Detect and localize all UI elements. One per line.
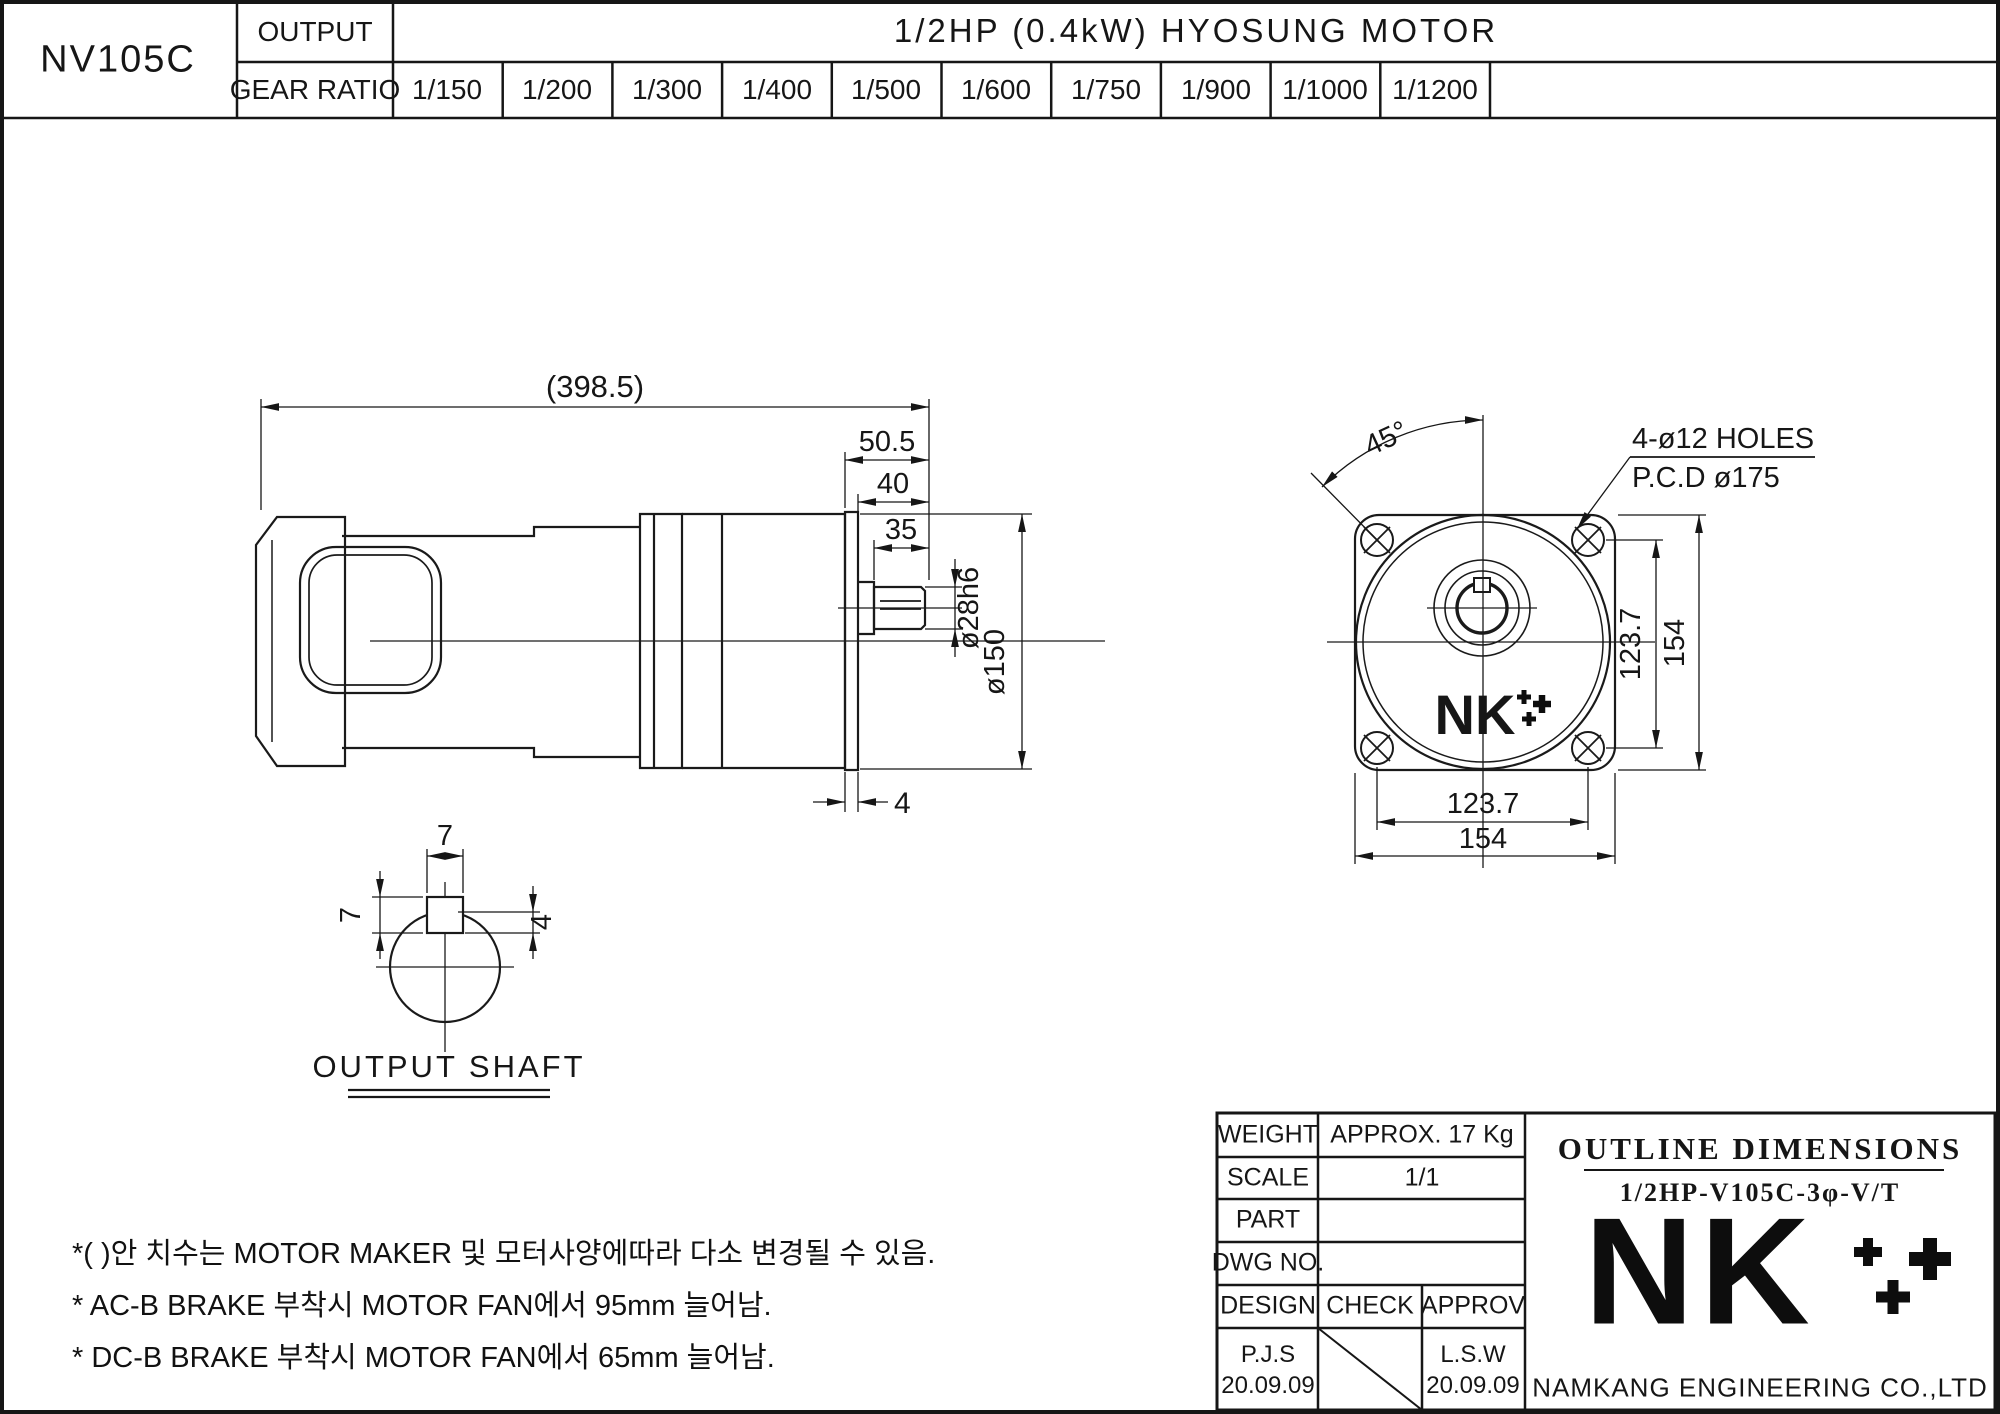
gear-ratio-cell: 1/200 <box>522 74 592 106</box>
approv-signature: L.S.W <box>1440 1341 1505 1369</box>
shaft-detail-outline <box>376 882 514 1052</box>
dim-key-height: 7 <box>335 907 367 923</box>
design-date: 20.09.09 <box>1221 1372 1314 1400</box>
gear-ratio-label: GEAR RATIO <box>230 74 401 106</box>
dim-body-dia: ø150 <box>979 629 1011 695</box>
dim-shaft-section: 40 <box>877 468 909 500</box>
company-logo-text: NK <box>1584 1185 1816 1360</box>
gear-ratio-cell: 1/300 <box>632 74 702 106</box>
hole-bottom-right <box>1572 732 1604 764</box>
output-label: OUTPUT <box>257 16 372 48</box>
hole-bottom-left <box>1361 732 1393 764</box>
note-line: * DC-B BRAKE 부착시 MOTOR FAN에서 65mm 늘어남. <box>72 1332 935 1384</box>
dim-shaft-length: 35 <box>885 514 917 546</box>
gear-ratio-cell: 1/600 <box>961 74 1031 106</box>
holes-note-line1: 4-ø12 HOLES <box>1632 423 1814 455</box>
dim-flange-thickness: 4 <box>894 787 911 820</box>
model-number: NV105C <box>40 39 196 82</box>
dim-hole-angle: 45° <box>1360 415 1413 463</box>
company-name: NAMKANG ENGINEERING CO.,LTD <box>1532 1373 1988 1404</box>
note-line: * AC-B BRAKE 부착시 MOTOR FAN에서 95mm 늘어남. <box>72 1280 935 1332</box>
scale-value: 1/1 <box>1405 1164 1440 1193</box>
side-view-dimension-lines <box>261 399 1032 812</box>
dim-key-width: 7 <box>437 820 453 852</box>
holes-note-line2: P.C.D ø175 <box>1632 462 1780 494</box>
approv-label: APPROV <box>1421 1292 1525 1321</box>
shaft-detail-title-underline <box>348 1090 550 1097</box>
dim-gearhead-length: 50.5 <box>859 426 915 458</box>
part-label: PART <box>1236 1206 1300 1235</box>
drawing-sheet: (398.5) 50.5 40 35 ø28h6 ø150 4 <box>0 0 2000 1414</box>
gear-ratio-cell: 1/750 <box>1071 74 1141 106</box>
approv-date: 20.09.09 <box>1426 1372 1519 1400</box>
weight-label: WEIGHT <box>1218 1121 1318 1150</box>
design-signature: P.J.S <box>1241 1341 1295 1369</box>
gear-ratio-cell: 1/1200 <box>1392 74 1478 106</box>
gear-ratio-cell: 1/1000 <box>1282 74 1368 106</box>
check-label: CHECK <box>1326 1292 1414 1321</box>
doc-title: OUTLINE DIMENSIONS <box>1558 1131 1963 1167</box>
dim-key-depth: 4 <box>526 914 558 930</box>
note-line: *( )안 치수는 MOTOR MAKER 및 모터사양에따라 다소 변경될 수… <box>72 1228 935 1280</box>
weight-value: APPROX. 17 Kg <box>1330 1121 1513 1150</box>
dim-pcd-horizontal: 123.7 <box>1447 788 1520 820</box>
dim-flange-horizontal: 154 <box>1459 823 1507 855</box>
front-view-dimension-lines <box>1355 515 1706 864</box>
gear-ratio-cell: 1/500 <box>851 74 921 106</box>
gear-ratio-cell: 1/400 <box>742 74 812 106</box>
company-logo-sparkles <box>1854 1238 1951 1314</box>
design-label: DESIGN <box>1220 1292 1316 1321</box>
motor-title: 1/2HP (0.4kW) HYOSUNG MOTOR <box>894 12 1498 50</box>
scale-label: SCALE <box>1227 1164 1309 1193</box>
front-view-logo-text: NK <box>1435 683 1516 746</box>
front-view-logo-sparkles <box>1517 690 1551 726</box>
dim-flange-vertical: 154 <box>1659 619 1691 667</box>
gear-ratio-cell: 1/900 <box>1181 74 1251 106</box>
gear-ratio-cell: 1/150 <box>412 74 482 106</box>
dim-pcd-vertical: 123.7 <box>1615 608 1647 681</box>
shaft-detail-title: OUTPUT SHAFT <box>312 1049 585 1084</box>
dwg-no-label: DWG NO. <box>1212 1249 1325 1278</box>
notes-block: *( )안 치수는 MOTOR MAKER 및 모터사양에따라 다소 변경될 수… <box>72 1228 935 1384</box>
dim-overall-length: (398.5) <box>546 369 644 404</box>
